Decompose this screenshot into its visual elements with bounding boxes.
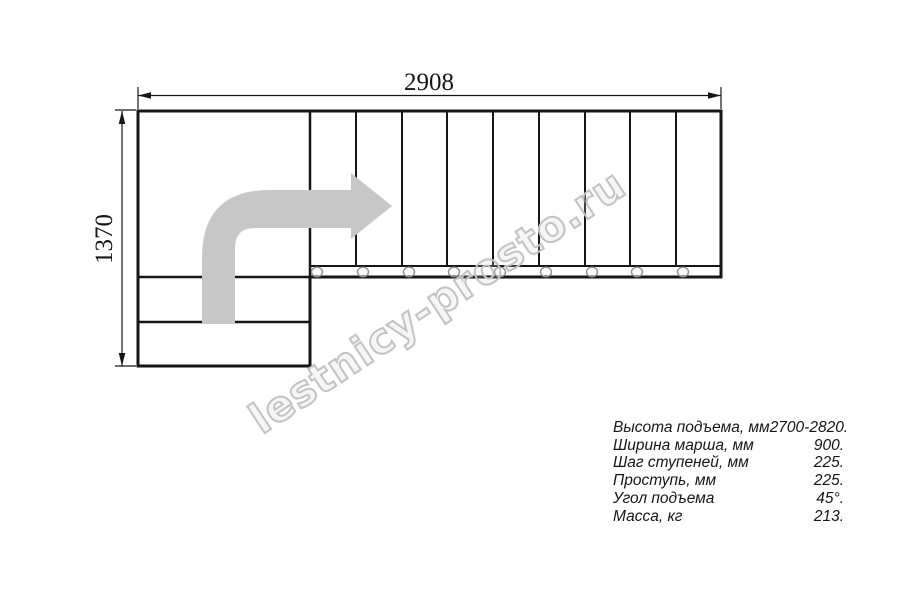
fastener-circle-icon [495,267,506,277]
dimension-arrowhead-icon [119,353,126,366]
fastener-circle-icon [678,267,689,277]
spec-value: 2700-2820. [770,419,848,437]
fastener-circles [312,267,689,277]
spec-value: 213. [814,508,844,526]
spec-label: Масса, кг [613,508,682,526]
dimension-arrowhead-icon [708,92,721,99]
spec-label: Ширина марша, мм [613,437,754,455]
fastener-circle-icon [541,267,552,277]
spec-row-tread: Проступь, мм 225. [613,472,844,490]
spec-label: Высота подъема, мм [613,419,770,437]
spec-table: Высота подъема, мм 2700-2820. Ширина мар… [613,419,844,525]
spec-row-mass: Масса, кг 213. [613,508,844,526]
walk-direction-arrow-icon [202,173,392,324]
dimension-top: 2908 [138,69,721,109]
spec-value: 225. [814,472,844,490]
spec-row-step-pitch: Шаг ступеней, мм 225. [613,454,844,472]
dimension-left: 1370 [91,110,136,366]
dimension-top-label: 2908 [404,69,454,96]
dimension-left-label: 1370 [91,214,118,264]
spec-label: Шаг ступеней, мм [613,454,749,472]
fastener-circle-icon [312,267,323,277]
spec-value: 900. [814,437,844,455]
spec-row-rise-height: Высота подъема, мм 2700-2820. [613,419,844,437]
fastener-circle-icon [449,267,460,277]
spec-label: Проступь, мм [613,472,716,490]
tread-dividers [356,111,676,266]
spec-value: 45°. [816,490,844,508]
fastener-circle-icon [404,267,415,277]
fastener-circle-icon [587,267,598,277]
spec-value: 225. [814,454,844,472]
staircase-drawing-page: 2908 1370 lestnicy-prosto.ru Высота подъ… [0,0,900,600]
dimension-arrowhead-icon [138,92,151,99]
dimension-arrowhead-icon [119,111,126,124]
spec-row-angle: Угол подъема 45°. [613,490,844,508]
fastener-circle-icon [358,267,369,277]
fastener-circle-icon [632,267,643,277]
spec-label: Угол подъема [613,490,714,508]
spec-row-flight-width: Ширина марша, мм 900. [613,437,844,455]
